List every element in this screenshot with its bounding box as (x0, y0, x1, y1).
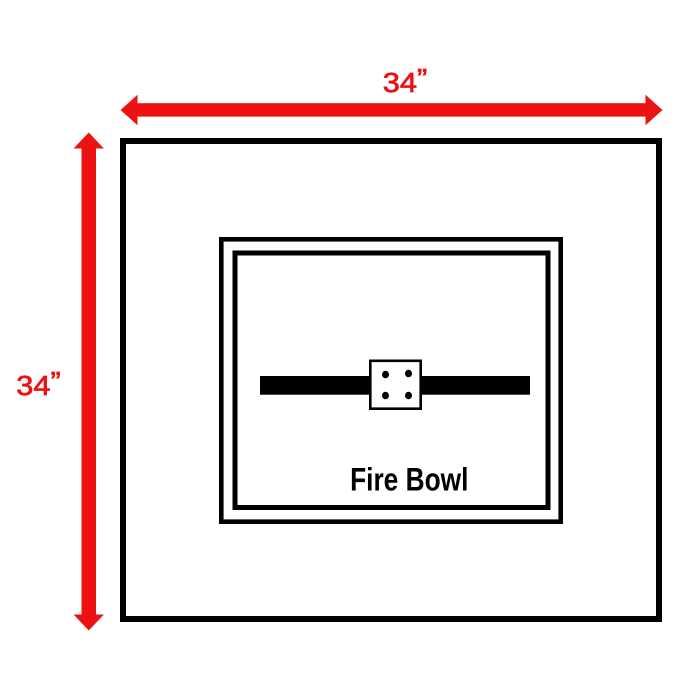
svg-text:34”: 34” (383, 63, 428, 98)
svg-text:34”: 34” (16, 366, 61, 401)
svg-text:Fire Bowl: Fire Bowl (350, 462, 468, 498)
